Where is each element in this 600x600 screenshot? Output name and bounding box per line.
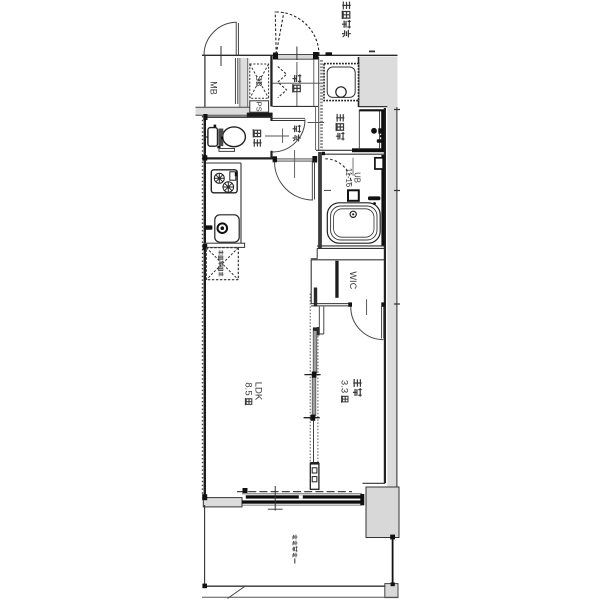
svg-text:8.5: 8.5: [242, 382, 253, 395]
svg-text:WIC: WIC: [348, 271, 358, 289]
svg-text:PS: PS: [254, 102, 263, 112]
svg-text:SB: SB: [254, 75, 264, 87]
svg-text:3.3: 3.3: [339, 380, 350, 393]
svg-text:11-16: 11-16: [344, 168, 353, 187]
svg-text:MB: MB: [209, 81, 219, 95]
